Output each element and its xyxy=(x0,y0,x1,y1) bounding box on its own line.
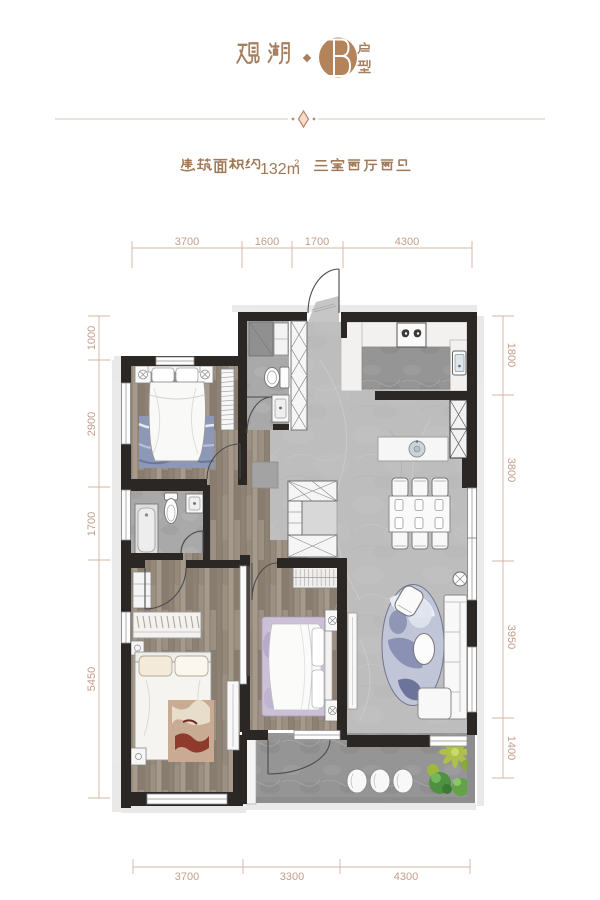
svg-text:3950: 3950 xyxy=(505,625,517,649)
svg-text:1600: 1600 xyxy=(255,236,279,248)
svg-text:3300: 3300 xyxy=(280,871,304,883)
svg-text:5450: 5450 xyxy=(86,667,98,691)
svg-text:2: 2 xyxy=(294,158,299,169)
svg-text:4300: 4300 xyxy=(395,236,419,248)
svg-text:1700: 1700 xyxy=(305,236,329,248)
svg-text:1800: 1800 xyxy=(505,343,517,367)
svg-text:2900: 2900 xyxy=(86,412,98,436)
svg-text:1000: 1000 xyxy=(86,326,98,350)
svg-text:3800: 3800 xyxy=(505,458,517,482)
svg-text:3700: 3700 xyxy=(175,236,199,248)
svg-text:1700: 1700 xyxy=(86,512,98,536)
svg-text:1400: 1400 xyxy=(505,736,517,760)
svg-text:4300: 4300 xyxy=(394,871,418,883)
svg-text:3700: 3700 xyxy=(175,871,199,883)
